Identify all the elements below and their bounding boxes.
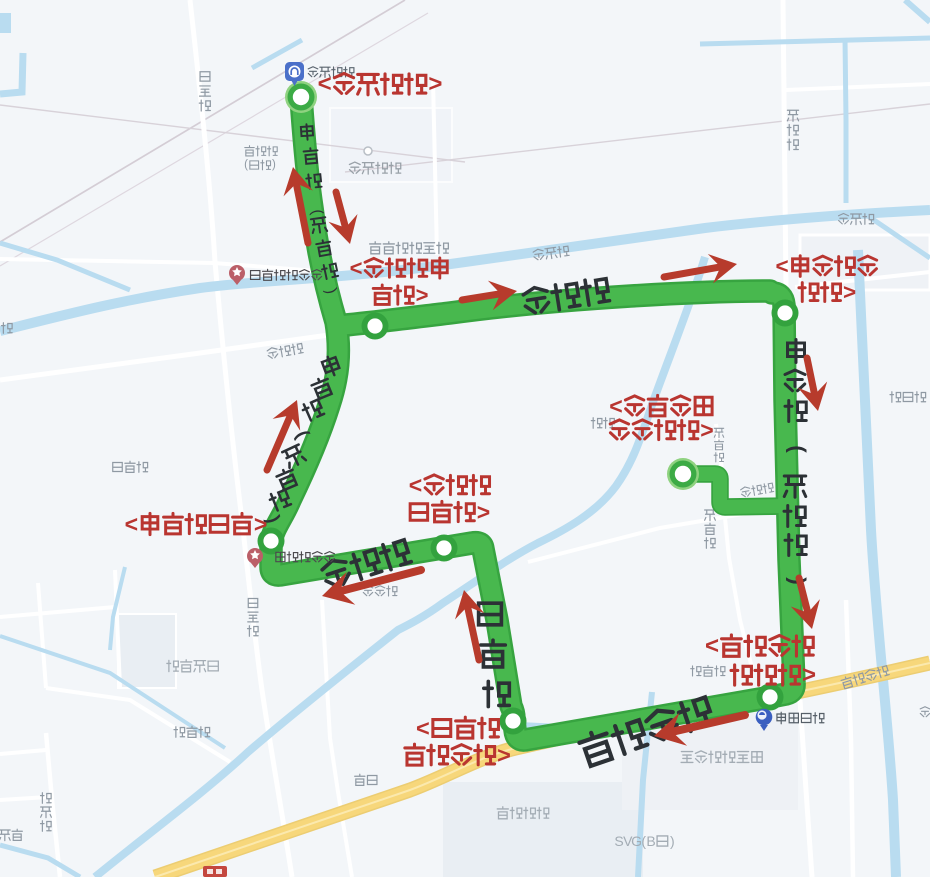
svg-text:): ) [272, 159, 276, 171]
svg-text:>: > [254, 511, 267, 537]
svg-text:<: < [416, 715, 430, 741]
svg-text:>: > [497, 742, 511, 768]
svg-text:<: < [125, 511, 138, 537]
svg-text:>: > [700, 417, 713, 443]
svg-text:>: > [416, 283, 429, 308]
svg-text:(: ( [244, 159, 248, 171]
svg-text:>: > [843, 280, 856, 305]
svg-text:>: > [428, 71, 442, 98]
svg-text:B: B [646, 833, 655, 849]
svg-text:<: < [609, 393, 622, 419]
svg-text:<: < [318, 71, 332, 98]
svg-text:(: ( [786, 445, 811, 453]
svg-text:G: G [631, 833, 642, 849]
svg-text:>: > [477, 499, 490, 525]
svg-text:<: < [775, 254, 788, 279]
svg-text:<: < [705, 633, 719, 660]
svg-text:): ) [670, 833, 675, 849]
svg-text:<: < [350, 256, 363, 281]
svg-text:<: < [409, 472, 422, 498]
svg-text:>: > [802, 662, 816, 689]
